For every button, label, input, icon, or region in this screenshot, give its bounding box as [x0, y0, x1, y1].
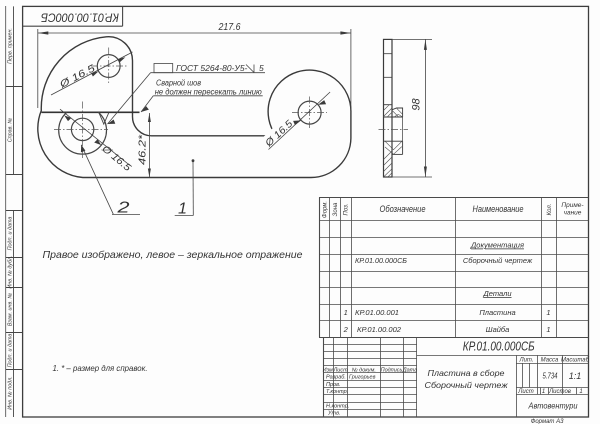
svg-text:Детали: Детали — [482, 289, 512, 298]
svg-text:Наименование: Наименование — [473, 204, 524, 214]
svg-text:5.734: 5.734 — [543, 371, 558, 381]
svg-text:Взам. инв. №: Взам. инв. № — [8, 293, 14, 327]
svg-text:КР.01.00.000СБ: КР.01.00.000СБ — [41, 10, 119, 24]
svg-text:Автовентури: Автовентури — [528, 401, 578, 411]
svg-text:Сборочный чертеж: Сборочный чертеж — [425, 380, 509, 390]
svg-text:1: 1 — [344, 308, 348, 317]
svg-text:2: 2 — [116, 200, 129, 217]
svg-text:2: 2 — [343, 325, 349, 334]
svg-text:Кол.: Кол. — [547, 204, 553, 216]
svg-text:КР.01.00.001: КР.01.00.001 — [355, 308, 399, 317]
svg-text:1: 1 — [579, 389, 582, 395]
svg-text:Пластина: Пластина — [479, 308, 515, 317]
svg-text:Утв.: Утв. — [327, 411, 341, 417]
svg-text:Обозначение: Обозначение — [380, 204, 426, 214]
svg-text:Лист: Лист — [517, 389, 533, 395]
svg-text:Поз.: Поз. — [344, 203, 350, 215]
svg-text:217.6: 217.6 — [218, 22, 241, 33]
svg-text:1: 1 — [542, 389, 545, 395]
svg-text:Масштаб: Масштаб — [561, 358, 590, 364]
svg-text:Документация: Документация — [470, 241, 524, 250]
svg-text:Сварной шов: Сварной шов — [156, 79, 201, 88]
svg-text:Григорьев: Григорьев — [349, 375, 376, 381]
svg-text:1:1: 1:1 — [569, 371, 582, 381]
svg-text:Листов: Листов — [548, 389, 571, 395]
svg-text:ГОСТ 5264-80-У5-: ГОСТ 5264-80-У5- — [176, 63, 248, 73]
svg-text:КР.01.00.002: КР.01.00.002 — [357, 325, 402, 334]
svg-text:46.2*: 46.2* — [138, 134, 149, 165]
svg-text:Т.контр.: Т.контр. — [326, 389, 348, 395]
svg-text:1: 1 — [178, 201, 187, 218]
svg-text:Справ. №: Справ. № — [8, 118, 14, 143]
svg-text:чание: чание — [564, 210, 582, 217]
svg-text:Дата: Дата — [402, 368, 418, 374]
svg-text:КР.01.00.000СБ: КР.01.00.000СБ — [355, 256, 407, 265]
svg-text:Пластина в сборе: Пластина в сборе — [428, 368, 505, 378]
svg-text:Форм.: Форм. — [323, 201, 329, 218]
svg-text:Формат А3: Формат А3 — [531, 419, 564, 424]
svg-text:1: 1 — [546, 308, 550, 317]
svg-text:Шайба: Шайба — [486, 325, 510, 334]
svg-text:Ø 16.5: Ø 16.5 — [99, 143, 133, 174]
svg-text:5: 5 — [259, 63, 264, 73]
svg-text:Лит.: Лит. — [518, 358, 533, 364]
svg-text:Перв. примен.: Перв. примен. — [8, 28, 14, 64]
svg-text:№ докум.: № докум. — [352, 368, 376, 374]
svg-text:Н.контр.: Н.контр. — [326, 403, 349, 409]
svg-text:Сборочный чертеж: Сборочный чертеж — [463, 256, 533, 265]
svg-text:Приме-: Приме- — [561, 202, 584, 209]
svg-text:Ø 16.5: Ø 16.5 — [57, 63, 97, 91]
svg-text:Лист: Лист — [333, 368, 349, 374]
svg-text:Инв. № подл.: Инв. № подл. — [8, 376, 14, 409]
svg-text:Инв. № дубл.: Инв. № дубл. — [8, 255, 14, 288]
svg-text:98: 98 — [411, 98, 423, 111]
svg-text:КР.01.00.000СБ: КР.01.00.000СБ — [463, 339, 535, 354]
svg-text:1: 1 — [546, 325, 550, 334]
svg-text:1. * – размер для справок.: 1. * – размер для справок. — [53, 363, 148, 373]
svg-text:Пров.: Пров. — [326, 382, 341, 388]
svg-text:Разраб.: Разраб. — [326, 375, 346, 381]
svg-text:Масса: Масса — [541, 358, 559, 364]
svg-text:Зона: Зона — [333, 202, 339, 216]
svg-text:Правое изображено, левое – зер: Правое изображено, левое – зеркальное от… — [43, 249, 303, 261]
svg-text:Подпись: Подпись — [381, 368, 403, 374]
svg-text:Подп. и дата: Подп. и дата — [8, 217, 14, 251]
svg-text:не должен пересекать линию: не должен пересекать линию — [155, 88, 262, 97]
svg-text:Подп. и дата: Подп. и дата — [8, 334, 14, 368]
